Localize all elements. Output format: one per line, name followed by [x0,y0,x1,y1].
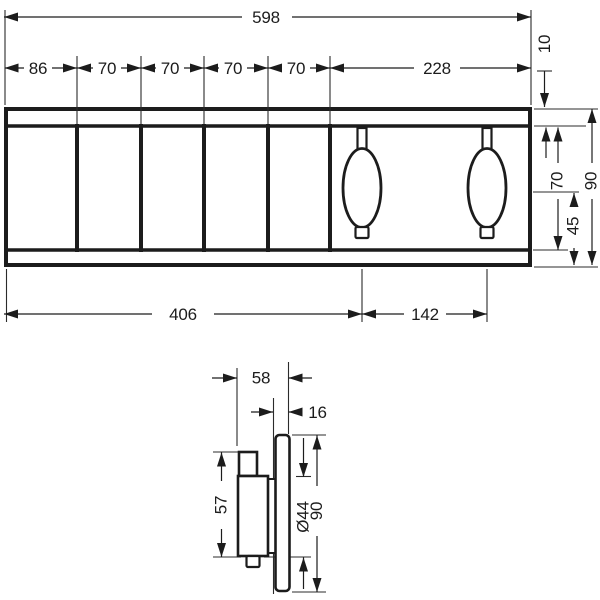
plate-height-label: 90 [307,502,326,521]
trim-plate-front [6,109,530,265]
total-depth-label: 58 [252,368,271,387]
handle-tab-side [247,556,260,567]
dim-total-width: 598 [4,8,531,27]
handle-spacing-label: 142 [411,305,439,324]
handle-tab-1 [356,227,369,238]
dim-handle-positions: 406 142 [4,305,487,324]
handle-oval-2 [468,149,506,228]
handle-top-step-side [239,452,257,476]
segment-width-label: 70 [98,59,117,78]
plate-depth-label: 16 [308,403,327,422]
total-height-label: 90 [581,172,600,191]
inner-height-label: 70 [547,172,566,191]
segment-width-label: 70 [224,59,243,78]
technical-drawing: 598 86 70 70 70 70 228 406 [0,0,600,600]
segment-width-label: 228 [423,59,451,78]
left-to-handle1-label: 406 [169,305,197,324]
side-view: 58 16 57 Ø44 90 [211,362,326,594]
handle-oval-1 [343,149,381,228]
handle-grip-side [238,476,268,556]
technical-drawing-page: 598 86 70 70 70 70 228 406 [0,0,600,600]
segment-width-label: 86 [29,59,48,78]
segment-width-label: 70 [287,59,306,78]
center-to-bottom-label: 45 [563,217,582,236]
segment-width-label: 70 [161,59,180,78]
total-width-label: 598 [252,8,280,27]
trim-plate-side [276,435,290,591]
front-view: 598 86 70 70 70 70 228 406 [4,8,600,324]
handle-height-label: 57 [211,496,230,515]
dim-front-heights: 10 70 45 90 [535,35,600,265]
side-profile [238,435,290,591]
handle-tab-2 [481,227,494,238]
top-offset-label: 10 [535,35,554,54]
dim-depths: 58 16 [212,368,327,422]
